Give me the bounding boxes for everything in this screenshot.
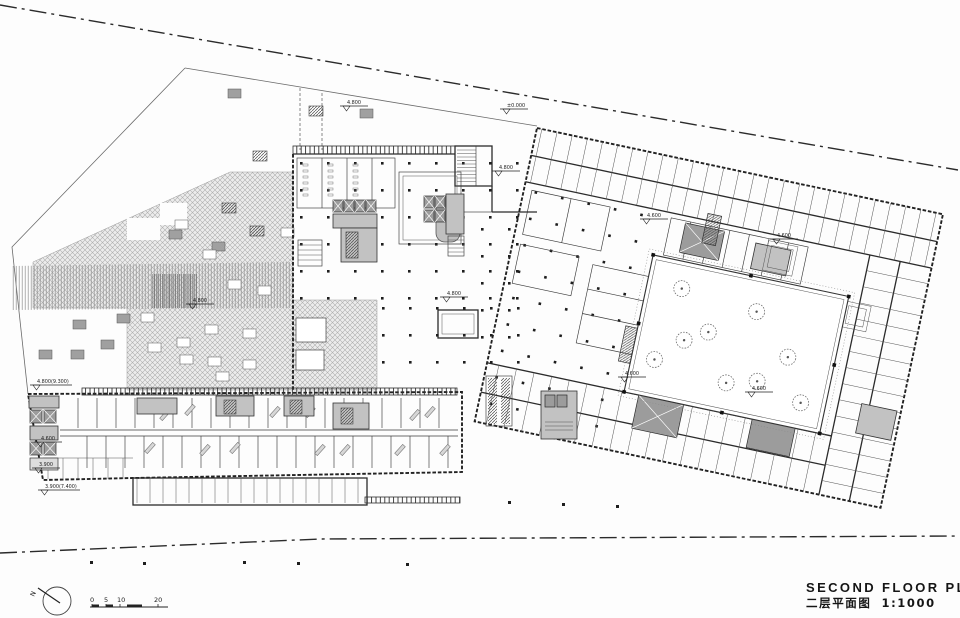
elevation-label: 3.900(7.400) [38, 484, 80, 495]
central-column-dots-south [382, 307, 520, 364]
title-english: SECOND FLOOR PLAN [806, 580, 960, 595]
elevation-value: 4.600 [777, 233, 791, 239]
elevation-value: 3.900(7.400) [45, 484, 77, 490]
elevation-label: 4.600 [640, 213, 668, 224]
grid-extension-dashed-lines [300, 88, 322, 150]
east-building-wing [475, 128, 943, 508]
elevator-bank [333, 200, 376, 212]
elevation-value: 4.600 [752, 386, 766, 392]
scale-bar-number: 0 [90, 596, 94, 604]
elevation-value: 4.800(9.300) [37, 379, 69, 385]
floor-plan-sheet: 4.800±0.0004.8004.6004.6004.8004.8004.80… [0, 0, 960, 618]
wing-west-elevator-stack [29, 396, 59, 470]
plaza-stepped-stripes [12, 262, 290, 310]
central-core-west [298, 200, 377, 266]
elevation-value: 3.900 [39, 462, 53, 468]
elevation-value: 4.800 [193, 298, 207, 304]
elevation-label: ±0.000 [500, 103, 528, 114]
elevation-value: 4.600 [625, 371, 639, 377]
scale-bar: 051020 [90, 596, 168, 607]
lounge-seating [303, 164, 358, 196]
floor-plan-drawing: 4.800±0.0004.8004.6004.6004.8004.8004.80… [0, 0, 960, 618]
elevation-value: 4.800 [447, 291, 461, 297]
elevation-label: 4.800(9.300) [30, 379, 72, 390]
elevation-value: 4.800 [347, 100, 361, 106]
southwest-ward-wing [28, 392, 462, 505]
east-guestroom-band [526, 128, 943, 268]
elevation-value: 4.600 [41, 436, 55, 442]
exterior-column-dots [90, 501, 619, 566]
elevation-label: 4.800 [492, 165, 520, 176]
atrium-skylight-square [438, 310, 478, 338]
scale-bar-number: 5 [104, 596, 108, 604]
elevation-value: ±0.000 [507, 103, 525, 109]
title-scale: 1:1000 [882, 596, 936, 610]
elevation-value: 4.800 [499, 165, 513, 171]
north-label: N [29, 590, 38, 598]
elevation-value: 4.600 [647, 213, 661, 219]
elevation-label: 4.800 [440, 291, 468, 302]
wing-cores [137, 396, 369, 429]
scale-bar-number: 10 [117, 596, 125, 604]
north-arrow: N [29, 587, 71, 615]
title-block: SECOND FLOOR PLAN 二层平面图1:1000 [806, 580, 960, 610]
scale-bar-number: 20 [154, 596, 162, 604]
title-chinese: 二层平面图1:1000 [806, 596, 936, 610]
